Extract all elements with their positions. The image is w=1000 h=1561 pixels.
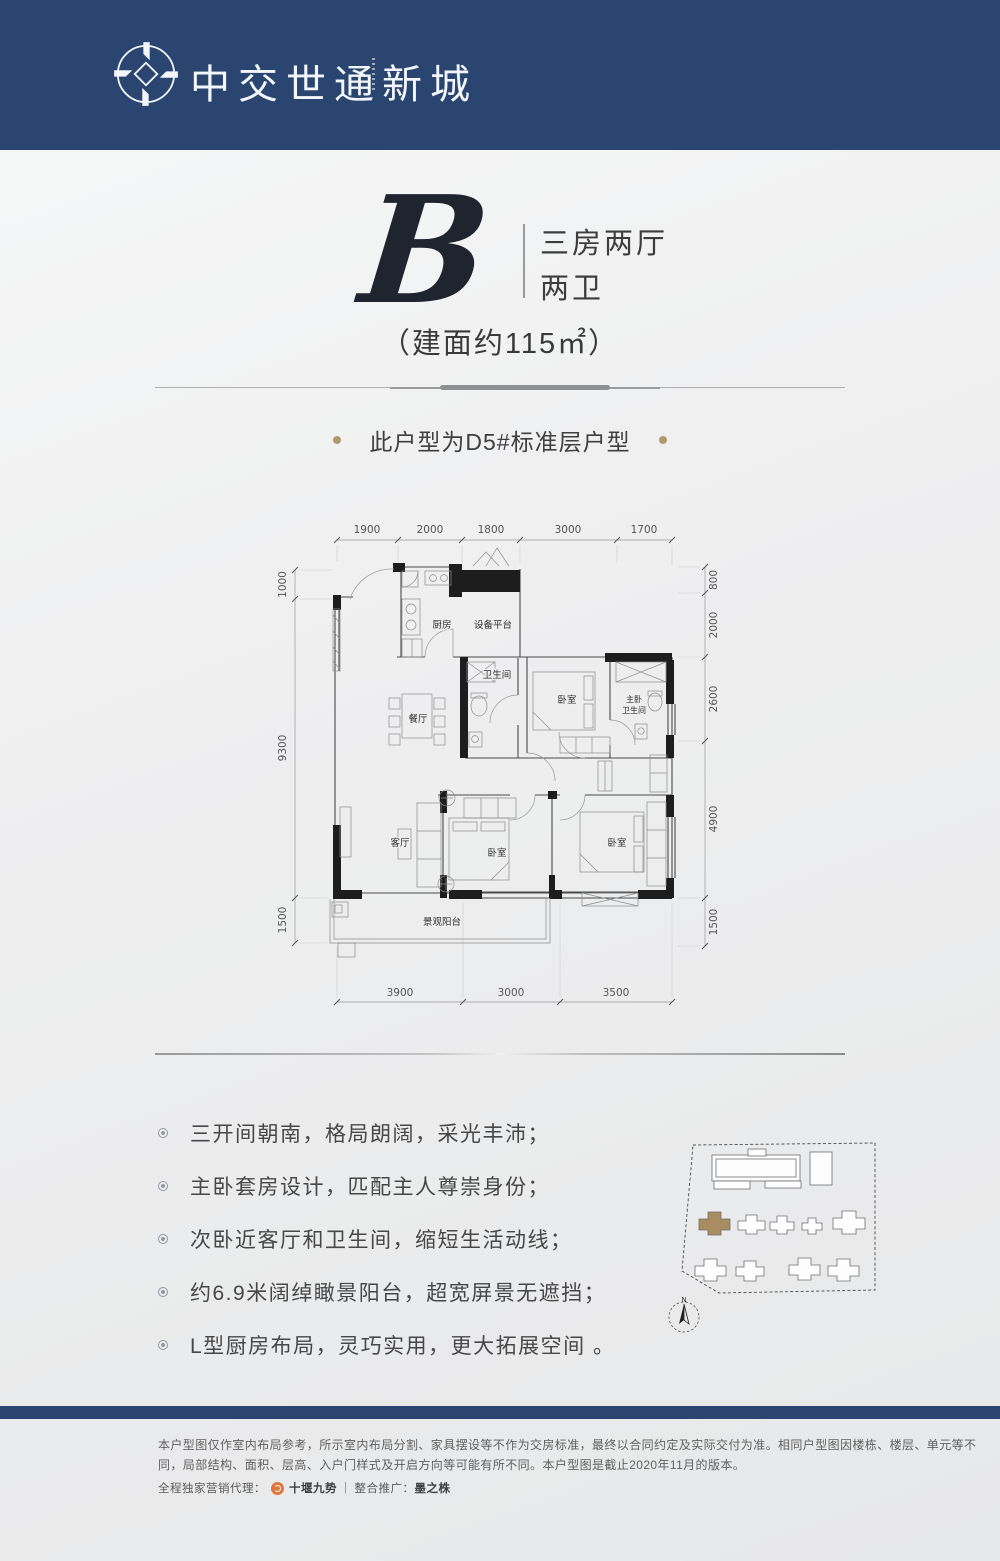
header-banner: 中交世通新城 bbox=[0, 0, 1000, 150]
brand-deco-text bbox=[372, 58, 375, 92]
unit-type-line2: 两卫 bbox=[540, 267, 668, 312]
room-label-kitchen: 厨房 bbox=[432, 619, 451, 631]
bullet-ring-icon bbox=[158, 1340, 168, 1350]
bullet-ring-icon bbox=[158, 1128, 168, 1138]
agency-row: 全程独家营销代理： 十堰九势 | 整合推广： 墨之株 bbox=[158, 1480, 451, 1496]
floor-note-row: 此户型为D5#标准层户型 bbox=[0, 423, 1000, 457]
room-label-living: 客厅 bbox=[390, 837, 410, 849]
promo-label: 整合推广： bbox=[355, 1480, 415, 1496]
room-label-balcony: 景观阳台 bbox=[423, 916, 461, 928]
dim-top-1: 1900 bbox=[354, 524, 381, 536]
feature-list: 三开间朝南，格局朗阔，采光丰沛； 主卧套房设计，匹配主人尊崇身份； 次卧近客厅和… bbox=[158, 1106, 616, 1371]
floorplan-drawing: 1900 2000 1800 3000 1700 1000 9300 1500 … bbox=[250, 495, 750, 1020]
dim-top-2: 2000 bbox=[417, 524, 444, 536]
room-label-master-bath-2: 卫生间 bbox=[622, 705, 646, 715]
note-dot-left bbox=[333, 436, 341, 444]
feature-item: 约6.9米阔绰瞰景阳台，超宽屏景无遮挡； bbox=[158, 1265, 616, 1318]
dim-top-3: 1800 bbox=[478, 524, 505, 536]
section-divider bbox=[155, 1053, 845, 1055]
hero-divider-line bbox=[523, 224, 525, 298]
feature-text: 次卧近客厅和卫生间，缩短生活动线； bbox=[190, 1224, 573, 1254]
dim-ticks bbox=[292, 537, 708, 1005]
feature-text: 约6.9米阔绰瞰景阳台，超宽屏景无遮挡； bbox=[190, 1277, 606, 1307]
dim-top-5: 1700 bbox=[631, 524, 658, 536]
dim-left-1: 1000 bbox=[277, 571, 289, 598]
agency-logo-icon bbox=[271, 1482, 284, 1495]
agency-name: 十堰九势 bbox=[289, 1480, 337, 1496]
feature-text: 主卧套房设计，匹配主人尊崇身份； bbox=[190, 1171, 550, 1201]
dim-right-3: 2600 bbox=[708, 686, 720, 713]
poster-page: 中交世通新城 B 三房两厅 两卫 （建面约115㎡） 此户型为D5#标准层户型 bbox=[0, 0, 1000, 1561]
dim-lines bbox=[295, 540, 705, 1002]
unit-area: （建面约115㎡） bbox=[0, 320, 1000, 362]
room-label-master-bath-1: 主卧 bbox=[626, 694, 642, 704]
highlighted-building bbox=[699, 1212, 730, 1235]
site-buildings-top bbox=[712, 1149, 832, 1189]
feature-item: 主卧套房设计，匹配主人尊崇身份； bbox=[158, 1159, 616, 1212]
door-arcs bbox=[350, 569, 635, 820]
room-label-bath: 卫生间 bbox=[483, 669, 512, 681]
room-label-bedroom-top: 卧室 bbox=[557, 694, 576, 706]
bullet-ring-icon bbox=[158, 1181, 168, 1191]
feature-item: 三开间朝南，格局朗阔，采光丰沛； bbox=[158, 1106, 616, 1159]
dim-bottom-3: 3500 bbox=[603, 987, 630, 999]
divider-bar bbox=[440, 385, 610, 390]
disclaimer-text: 本户型图仅作室内布局参考，所示室内布局分割、家具摆设等不作为交房标准，最终以合同… bbox=[158, 1436, 996, 1476]
feature-item: 次卧近客厅和卫生间，缩短生活动线； bbox=[158, 1212, 616, 1265]
feature-text: L型厨房布局，灵巧实用，更大拓展空间 。 bbox=[190, 1330, 616, 1360]
brand-logo-icon bbox=[112, 40, 180, 108]
unit-letter: B bbox=[322, 176, 528, 326]
promo-name: 墨之株 bbox=[415, 1480, 451, 1496]
separator: | bbox=[344, 1482, 348, 1494]
room-label-dining: 餐厅 bbox=[408, 713, 428, 725]
unit-type: 三房两厅 两卫 bbox=[540, 222, 668, 312]
room-label-equipment: 设备平台 bbox=[474, 619, 512, 631]
agency-label: 全程独家营销代理： bbox=[158, 1480, 266, 1496]
dim-right-4: 4900 bbox=[708, 806, 720, 833]
note-dot-right bbox=[659, 436, 667, 444]
dim-top-4: 3000 bbox=[555, 524, 582, 536]
dim-extension-lines bbox=[300, 545, 700, 998]
bullet-ring-icon bbox=[158, 1287, 168, 1297]
siteplan-map: N bbox=[662, 1124, 972, 1339]
brand-name: 中交世通新城 bbox=[190, 52, 478, 110]
dim-bottom-1: 3900 bbox=[387, 987, 414, 999]
site-buildings-rows bbox=[695, 1211, 865, 1281]
dim-right-2: 2000 bbox=[708, 612, 720, 639]
dim-right-5: 1500 bbox=[708, 909, 720, 936]
feature-text: 三开间朝南，格局朗阔，采光丰沛； bbox=[190, 1118, 550, 1148]
dim-left-3: 1500 bbox=[277, 907, 289, 934]
dim-left-2: 9300 bbox=[277, 735, 289, 762]
room-label-bedroom-mid: 卧室 bbox=[487, 847, 506, 859]
bullet-ring-icon bbox=[158, 1234, 168, 1244]
room-label-bedroom-right: 卧室 bbox=[607, 837, 626, 849]
floor-note: 此户型为D5#标准层户型 bbox=[369, 423, 630, 457]
dim-bottom-2: 3000 bbox=[498, 987, 525, 999]
feature-item: L型厨房布局，灵巧实用，更大拓展空间 。 bbox=[158, 1318, 616, 1371]
ornamental-divider bbox=[155, 385, 845, 391]
compass-north-label: N bbox=[681, 1296, 686, 1304]
unit-type-line1: 三房两厅 bbox=[540, 222, 668, 267]
compass-icon: N bbox=[669, 1296, 699, 1332]
dim-right-1: 800 bbox=[708, 570, 720, 590]
footer-bar bbox=[0, 1406, 1000, 1419]
